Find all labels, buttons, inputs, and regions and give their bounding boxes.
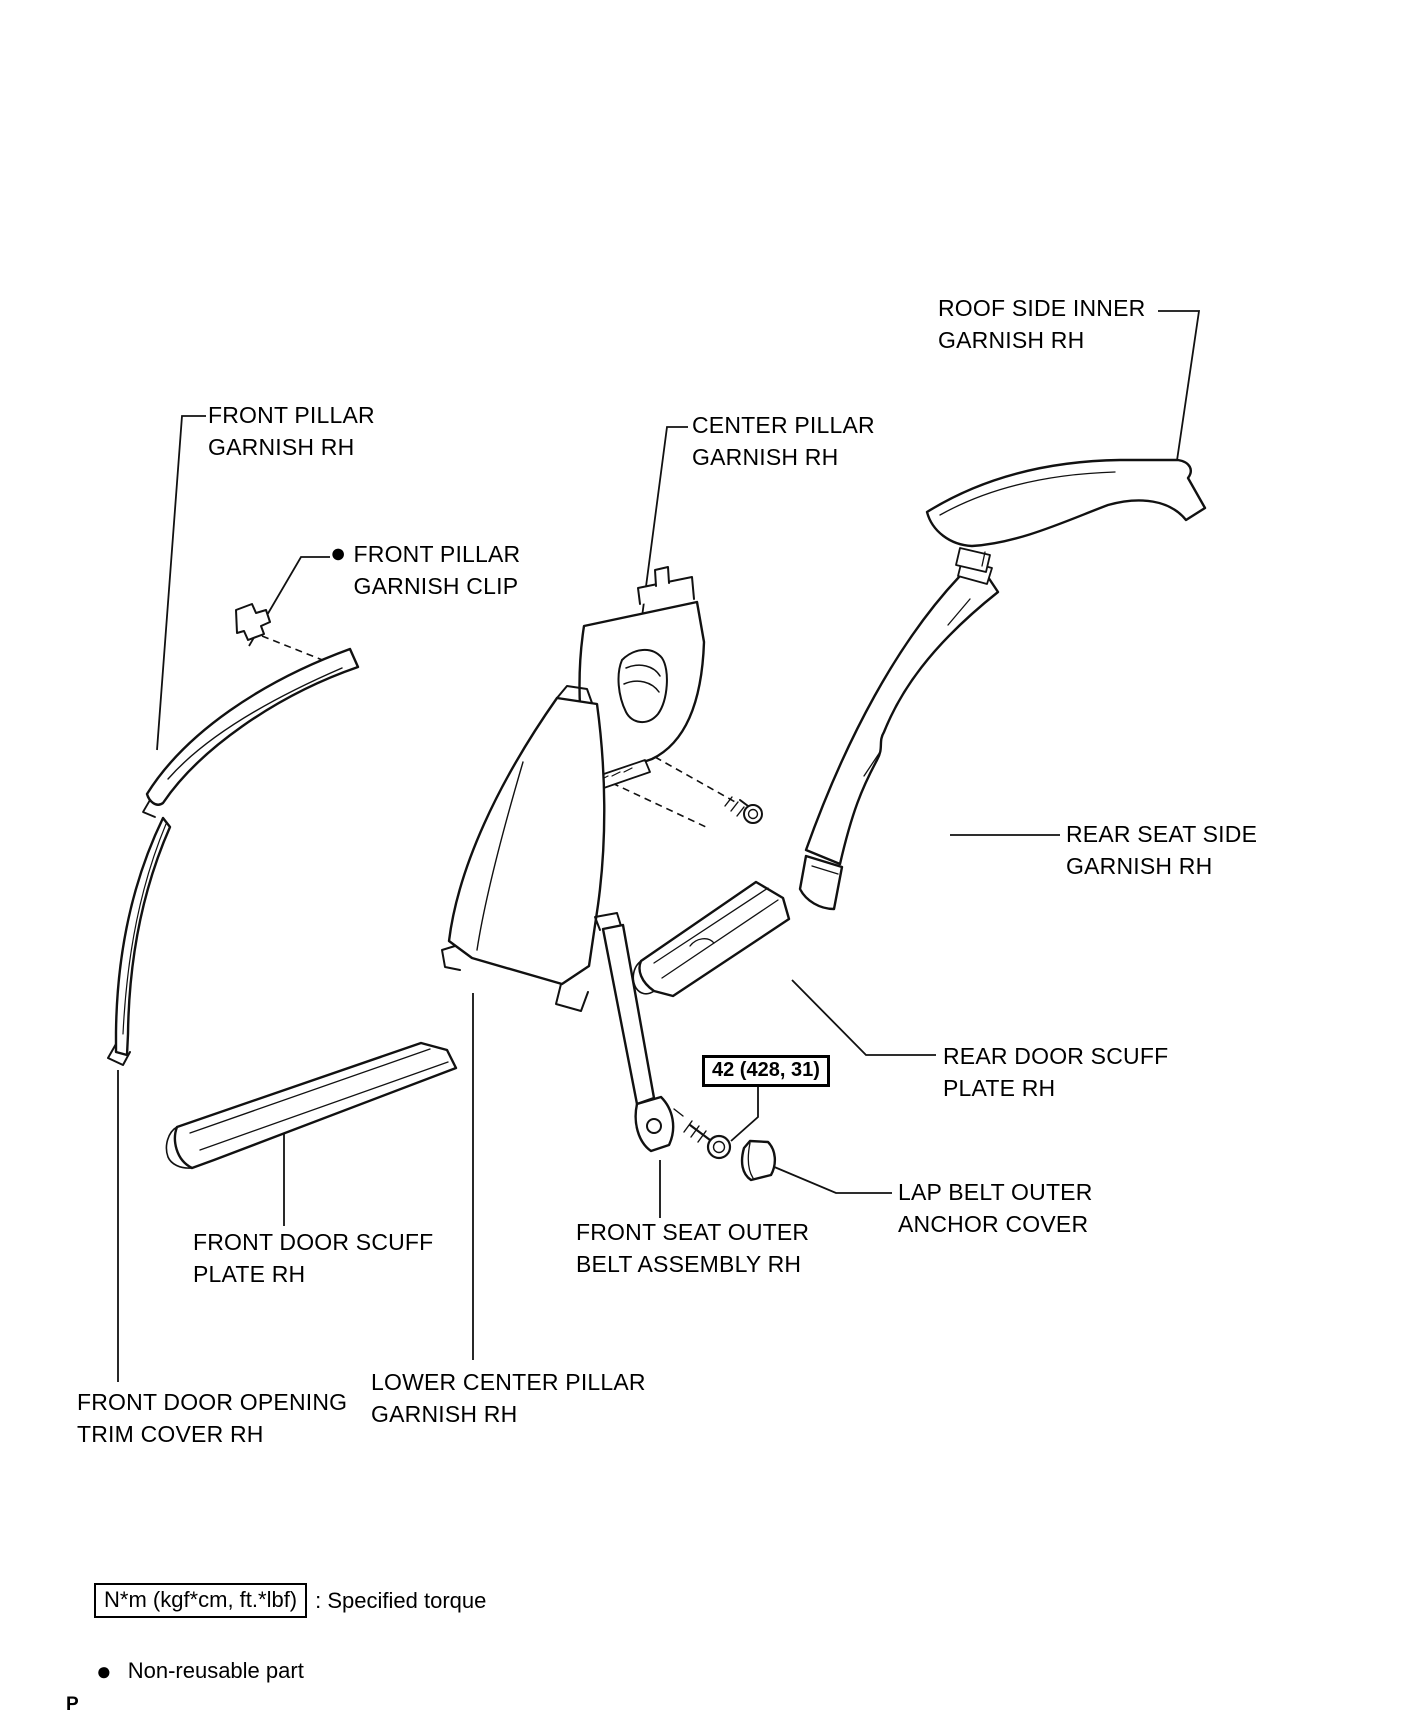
lower-center-pillar-garnish-part xyxy=(442,686,604,1011)
anchor-bolt-part xyxy=(674,1109,730,1158)
label-line: REAR SEAT SIDE xyxy=(1066,818,1257,850)
label-line: FRONT PILLAR xyxy=(208,399,375,431)
label-line: REAR DOOR SCUFF xyxy=(943,1040,1168,1072)
label-line: CENTER PILLAR xyxy=(692,409,875,441)
lap-belt-outer-anchor-cover-part xyxy=(742,1141,775,1180)
leader-front-pillar-garnish xyxy=(157,416,206,750)
torque-units-box: N*m (kgf*cm, ft.*lbf) xyxy=(94,1583,307,1618)
label-front-door-opening: FRONT DOOR OPENING TRIM COVER RH xyxy=(77,1386,347,1450)
label-front-door-scuff: FRONT DOOR SCUFF PLATE RH xyxy=(193,1226,433,1290)
exploded-parts-diagram-page: ROOF SIDE INNER GARNISH RH FRONT PILLAR … xyxy=(0,0,1408,1734)
rear-seat-side-garnish-part xyxy=(800,560,998,909)
label-line: GARNISH RH xyxy=(371,1398,646,1430)
leader-torque-callout xyxy=(731,1087,758,1141)
label-lower-center-pillar: LOWER CENTER PILLAR GARNISH RH xyxy=(371,1366,646,1430)
label-line: GARNISH RH xyxy=(938,324,1145,356)
label-rear-seat-side: REAR SEAT SIDE GARNISH RH xyxy=(1066,818,1257,882)
torque-callout-box: 42 (428, 31) xyxy=(702,1055,830,1087)
page-marker: P xyxy=(66,1694,79,1716)
label-line: GARNISH CLIP xyxy=(354,570,521,602)
front-pillar-garnish-part xyxy=(143,649,358,817)
roof-side-inner-garnish-part xyxy=(927,460,1205,572)
non-reusable-bullet-icon: ● xyxy=(96,1656,112,1686)
legend-non-reusable-row: ● Non-reusable part xyxy=(96,1656,304,1686)
leader-lap-belt-cover xyxy=(772,1166,892,1193)
mounting-screw-part xyxy=(725,797,762,823)
label-front-seat-belt: FRONT SEAT OUTER BELT ASSEMBLY RH xyxy=(576,1216,809,1280)
torque-legend-text: : Specified torque xyxy=(315,1588,486,1614)
label-text: FRONT PILLAR GARNISH CLIP xyxy=(354,538,521,602)
leader-roof-side-inner xyxy=(1158,311,1199,474)
label-line: FRONT DOOR OPENING xyxy=(77,1386,347,1418)
label-line: BELT ASSEMBLY RH xyxy=(576,1248,809,1280)
label-line: LAP BELT OUTER xyxy=(898,1176,1093,1208)
label-rear-door-scuff: REAR DOOR SCUFF PLATE RH xyxy=(943,1040,1168,1104)
label-line: GARNISH RH xyxy=(208,431,375,463)
label-line: FRONT PILLAR xyxy=(354,538,521,570)
label-line: LOWER CENTER PILLAR xyxy=(371,1366,646,1398)
label-line: ROOF SIDE INNER xyxy=(938,292,1145,324)
label-line: GARNISH RH xyxy=(1066,850,1257,882)
dashed-clip-to-pillar xyxy=(262,636,330,663)
legend-torque-row: N*m (kgf*cm, ft.*lbf) : Specified torque xyxy=(94,1583,486,1618)
front-pillar-garnish-clip-part xyxy=(236,604,270,640)
label-line: FRONT SEAT OUTER xyxy=(576,1216,809,1248)
dashed-garnish-to-screw-2 xyxy=(612,783,706,827)
label-line: PLATE RH xyxy=(193,1258,433,1290)
label-center-pillar-garnish: CENTER PILLAR GARNISH RH xyxy=(692,409,875,473)
leader-rear-door-scuff xyxy=(792,980,936,1055)
rear-door-scuff-plate-part xyxy=(633,882,789,996)
label-lap-belt-cover: LAP BELT OUTER ANCHOR COVER xyxy=(898,1176,1093,1240)
non-reusable-legend-text: Non-reusable part xyxy=(128,1658,304,1684)
label-front-pillar-garnish: FRONT PILLAR GARNISH RH xyxy=(208,399,375,463)
label-line: TRIM COVER RH xyxy=(77,1418,347,1450)
dashed-garnish-to-screw-1 xyxy=(655,757,737,803)
front-door-scuff-plate-part xyxy=(166,1043,456,1168)
label-roof-side-inner: ROOF SIDE INNER GARNISH RH xyxy=(938,292,1145,356)
front-door-opening-trim-cover-part xyxy=(108,818,170,1065)
label-front-pillar-clip: ● FRONT PILLAR GARNISH CLIP xyxy=(330,538,520,602)
label-line: ANCHOR COVER xyxy=(898,1208,1093,1240)
label-line: GARNISH RH xyxy=(692,441,875,473)
label-line: PLATE RH xyxy=(943,1072,1168,1104)
non-reusable-bullet-icon: ● xyxy=(330,538,347,568)
label-line: FRONT DOOR SCUFF xyxy=(193,1226,433,1258)
